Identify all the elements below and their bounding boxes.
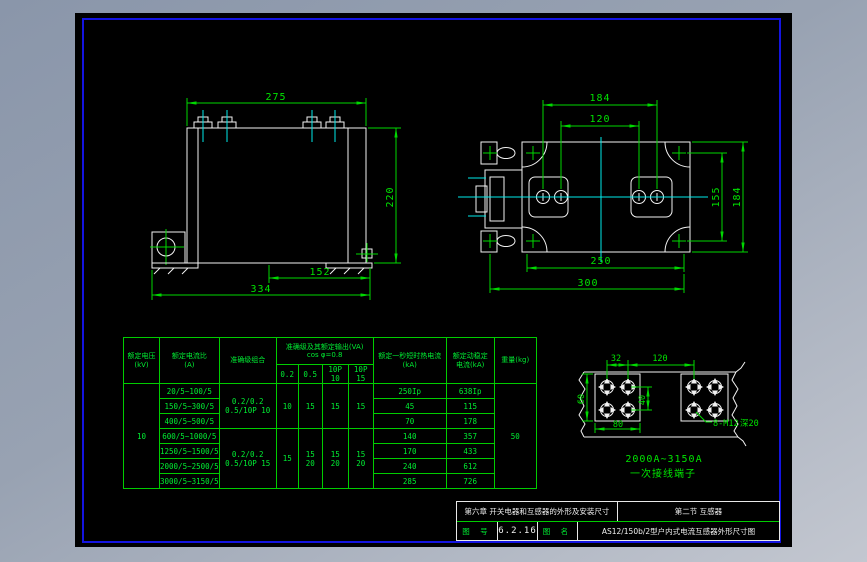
cell-dynamic-1: 638Ip: [446, 384, 494, 399]
cell-dynamic-6: 612: [446, 459, 494, 474]
dim-label-334: 334: [250, 284, 271, 295]
cell-dynamic-3: 178: [446, 414, 494, 429]
col-header-output: 准确级及其额定输出(VA) cos φ=0.8: [276, 338, 373, 365]
section-title: 第二节 互感器: [618, 502, 779, 521]
cell-thermal-4: 140: [373, 429, 446, 444]
dim-label-250: 250: [590, 256, 611, 267]
figure-name: AS12/150b/2型户内式电流互感器外形尺寸图: [578, 522, 779, 540]
col-header-voltage: 额定电压 (kV): [124, 338, 160, 384]
subcol-10p15: 10P 15: [348, 365, 373, 384]
title-block: 第六章 开关电器和互感器的外形及安装尺寸 第二节 互感器 图 号 6.2.16 …: [456, 501, 780, 541]
dim-label-60: 60: [577, 394, 587, 404]
figure-name-label: 图 名: [538, 522, 578, 540]
dim-label-80: 80: [613, 420, 623, 430]
cell-ratio-5: 1250/5~1500/5: [160, 444, 220, 459]
dim-label-152: 152: [309, 267, 330, 278]
cell-out2-0p2: 15: [276, 429, 298, 489]
cell-ratio-2: 150/5~300/5: [160, 399, 220, 414]
cell-out1-0p2: 10: [276, 384, 298, 429]
col-header-weight: 重量(kg): [494, 338, 536, 384]
subcol-0p5: 0.5: [298, 365, 322, 384]
cell-thermal-6: 240: [373, 459, 446, 474]
figure-number: 6.2.16: [498, 522, 538, 540]
cell-combo-group2: 0.2/0.2 0.5/10P 15: [219, 429, 276, 489]
dim-label-120-detail: 120: [652, 354, 667, 364]
cell-dynamic-2: 115: [446, 399, 494, 414]
title-block-row-1: 第六章 开关电器和互感器的外形及安装尺寸 第二节 互感器: [457, 502, 779, 521]
specification-table: 额定电压 (kV) 额定电流比 (A) 准确级组合 准确级及其额定输出(VA) …: [123, 337, 537, 489]
dim-label-32: 32: [611, 354, 621, 364]
title-block-row-2: 图 号 6.2.16 图 名 AS12/150b/2型户内式电流互感器外形尺寸图: [457, 521, 779, 540]
cell-out1-10p10: 15: [322, 384, 348, 429]
detail-caption: 一次接线端子: [630, 467, 696, 480]
cell-ratio-7: 3000/5~3150/5: [160, 474, 220, 489]
cell-out1-10p15: 15: [348, 384, 373, 429]
cell-ratio-3: 400/5~500/5: [160, 414, 220, 429]
cad-screenshot: { "app": { "background_top": "#8a96aa", …: [0, 0, 867, 562]
cell-thermal-5: 170: [373, 444, 446, 459]
col-header-dynamic: 额定动稳定 电流(kA): [446, 338, 494, 384]
subcol-10p10: 10P 10: [322, 365, 348, 384]
dim-label-220: 220: [385, 186, 396, 207]
table-row: 10 20/5~100/5 0.2/0.2 0.5/10P 10 10 15 1…: [124, 384, 537, 399]
cell-out2-10p15: 15 20: [348, 429, 373, 489]
chapter-title: 第六章 开关电器和互感器的外形及安装尺寸: [457, 502, 618, 521]
dim-label-184-top: 184: [589, 93, 610, 104]
dim-label-300: 300: [577, 278, 598, 289]
cell-out2-10p10: 15 20: [322, 429, 348, 489]
cell-out1-0p5: 15: [298, 384, 322, 429]
cell-combo-group1: 0.2/0.2 0.5/10P 10: [219, 384, 276, 429]
cell-voltage: 10: [124, 384, 160, 489]
cell-ratio-6: 2000/5~2500/5: [160, 459, 220, 474]
dim-label-155: 155: [711, 186, 722, 207]
cell-ratio-1: 20/5~100/5: [160, 384, 220, 399]
cell-weight: 50: [494, 384, 536, 489]
col-header-ratio: 额定电流比 (A): [160, 338, 220, 384]
dim-label-120: 120: [589, 114, 610, 125]
cell-out2-0p5: 15 20: [298, 429, 322, 489]
dim-label-184-side: 184: [732, 186, 743, 207]
cell-dynamic-5: 433: [446, 444, 494, 459]
cell-thermal-1: 250Ip: [373, 384, 446, 399]
table-row: 600/5~1000/5 0.2/0.2 0.5/10P 15 15 15 20…: [124, 429, 537, 444]
cell-thermal-3: 70: [373, 414, 446, 429]
holes-callout: 8-M12: [713, 419, 739, 429]
cell-thermal-2: 45: [373, 399, 446, 414]
dim-label-275: 275: [265, 92, 286, 103]
col-header-thermal: 额定一秒短时热电流 (kA): [373, 338, 446, 384]
cell-dynamic-4: 357: [446, 429, 494, 444]
col-header-combo: 准确级组合: [219, 338, 276, 384]
cell-dynamic-7: 726: [446, 474, 494, 489]
figure-number-label: 图 号: [457, 522, 498, 540]
cell-ratio-4: 600/5~1000/5: [160, 429, 220, 444]
subcol-0p2: 0.2: [276, 365, 298, 384]
depth-callout: 深20: [740, 419, 759, 429]
cell-thermal-7: 285: [373, 474, 446, 489]
current-range-label: 2000A~3150A: [625, 454, 702, 465]
dim-label-40: 40: [638, 395, 648, 405]
